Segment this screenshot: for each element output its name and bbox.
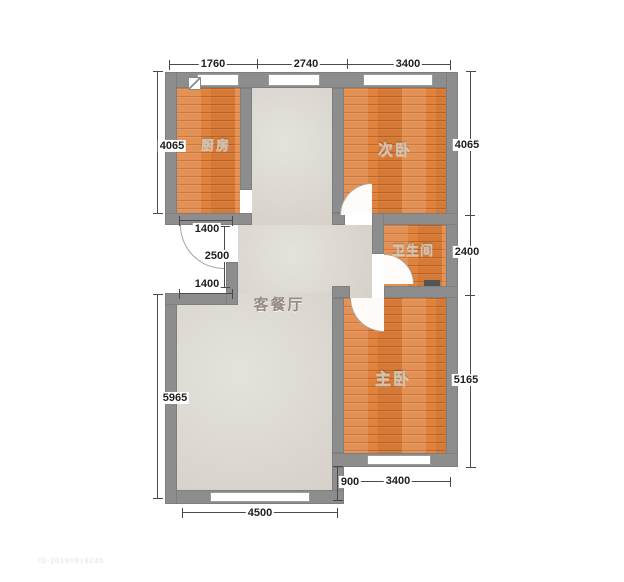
dim-tick: [465, 295, 475, 296]
living-dining-floor-top: [252, 88, 332, 225]
wall-right: [446, 72, 458, 467]
bathroom-fixture: [424, 280, 440, 286]
dim-right-secondary: 4065: [453, 139, 481, 151]
dim-entry-width-top: 1400: [193, 223, 221, 235]
wall-kitchen-right: [240, 88, 252, 190]
watermark: ID-20160819245: [38, 558, 104, 565]
dim-bottom-living: 4500: [246, 507, 274, 519]
dim-right-bathroom: 2400: [453, 246, 481, 258]
dim-left-living: 5965: [161, 392, 189, 404]
dim-line-entry-bottom: [180, 293, 232, 294]
dim-bottom-step: 900: [339, 476, 361, 488]
window-living-bottom: [210, 492, 310, 502]
room-label-secondary-bedroom: 次卧: [378, 139, 412, 160]
window-master-bottom: [367, 455, 431, 465]
dim-top-kitchen: 1760: [199, 58, 227, 70]
window-secondary-top: [363, 74, 433, 86]
dim-line-entry-top: [180, 220, 232, 221]
dim-left-kitchen: 4065: [158, 140, 186, 152]
dim-tick: [257, 59, 258, 69]
dim-tick: [347, 59, 348, 69]
dim-tick: [465, 215, 475, 216]
dim-entry-width-bottom: 1400: [193, 278, 221, 290]
dim-line-right: [470, 72, 471, 467]
floor-plan: 厨房 次卧 卫生间 客餐厅 主卧 1760 2740 3400 4065 140…: [0, 0, 624, 582]
room-label-bathroom: 卫生间: [392, 240, 434, 259]
dim-right-master: 5165: [452, 374, 480, 386]
window-kitchen-top: [197, 74, 239, 86]
room-label-master-bedroom: 主卧: [375, 365, 411, 389]
window-living-top: [268, 74, 320, 86]
dim-line-left-lower: [157, 295, 158, 498]
room-label-kitchen: 厨房: [201, 135, 231, 154]
wall-master-top: [384, 286, 458, 298]
wall-secondary-left: [332, 88, 344, 213]
living-dining-floor-main: [177, 293, 332, 490]
wall-secondary-bottom-right: [372, 213, 458, 225]
wall-bathroom-left: [372, 213, 384, 254]
dim-top-secondary: 3400: [394, 58, 422, 70]
kitchen-sink-icon: [188, 77, 201, 90]
wall-master-left: [332, 298, 344, 453]
dim-bottom-master: 3400: [384, 475, 412, 487]
wall-master-top-stub: [332, 286, 350, 298]
living-dining-floor-mid: [238, 225, 372, 298]
dim-top-living: 2740: [292, 58, 320, 70]
dim-entry-height: 2500: [203, 250, 231, 262]
room-label-living-dining: 客餐厅: [253, 294, 304, 315]
